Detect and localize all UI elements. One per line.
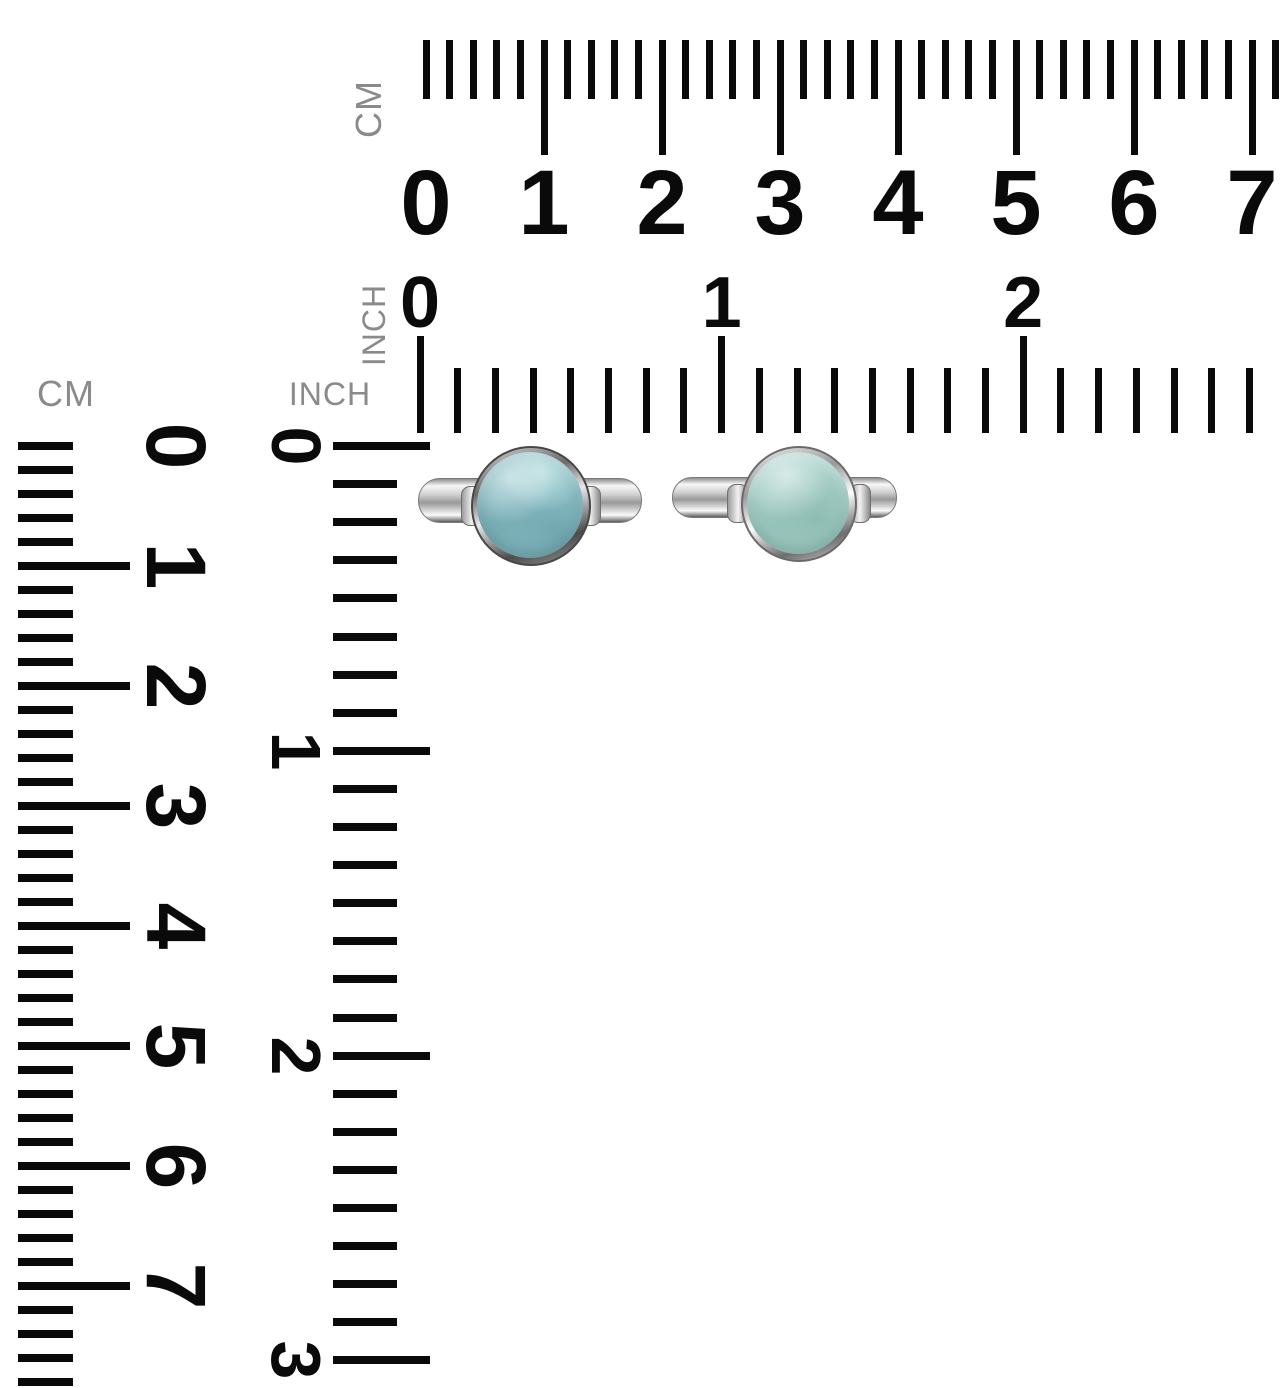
left-cm-tick [18, 1234, 73, 1242]
top-cm-number: 0 [400, 157, 451, 249]
left-cm-major-tick [18, 1042, 130, 1050]
top-cm-tick [682, 40, 689, 99]
left-cm-number: 0 [134, 423, 218, 470]
left-cm-tick [18, 1018, 73, 1026]
left-cm-tick [18, 634, 73, 642]
left-cm-tick [18, 706, 73, 714]
left-cm-tick [18, 1066, 73, 1074]
left-cm-tick [18, 1186, 73, 1194]
left-cm-major-tick [18, 1162, 130, 1170]
inch-unit-label-left: INCH [289, 378, 371, 410]
top-cm-major-tick [1013, 40, 1020, 155]
left-inch-major-tick [333, 747, 430, 755]
left-cm-number: 4 [134, 903, 218, 950]
top-inch-tick [869, 368, 876, 433]
top-inch-tick [756, 368, 763, 433]
left-inch-tick [333, 1014, 397, 1022]
product-measurement-photo: 01234567 012 01234567 0123 CM INCH CM IN… [0, 0, 1284, 1388]
cm-unit-label-top: CM [351, 80, 387, 138]
top-cm-tick [611, 40, 618, 99]
left-cm-tick [18, 1354, 73, 1362]
top-cm-tick [753, 40, 760, 99]
left-inch-tick [333, 633, 397, 641]
top-cm-tick [989, 40, 996, 99]
left-cm-tick [18, 466, 73, 474]
top-cm-tick [1060, 40, 1067, 99]
top-cm-tick [1201, 40, 1208, 99]
left-cm-tick [18, 778, 73, 786]
left-cm-tick [18, 610, 73, 618]
top-cm-tick [871, 40, 878, 99]
top-cm-number: 2 [636, 157, 687, 249]
top-inch-number: 0 [400, 267, 440, 339]
top-cm-tick [564, 40, 571, 99]
top-cm-tick [1083, 40, 1090, 99]
ring-right-aquamarine-stone [747, 452, 849, 554]
top-cm-tick [635, 40, 642, 99]
top-inch-tick [1057, 368, 1064, 433]
left-inch-major-tick [333, 1356, 430, 1364]
left-cm-tick [18, 490, 73, 498]
top-cm-number: 7 [1226, 157, 1277, 249]
top-cm-major-tick [1131, 40, 1138, 155]
left-cm-major-tick [18, 922, 130, 930]
top-inch-major-tick [718, 336, 725, 433]
top-inch-tick [567, 368, 574, 433]
left-cm-tick [18, 1210, 73, 1218]
left-inch-tick [333, 480, 397, 488]
top-cm-major-tick [895, 40, 902, 155]
left-inch-tick [333, 671, 397, 679]
left-inch-tick [333, 1318, 397, 1326]
top-cm-tick [800, 40, 807, 99]
top-inch-number: 1 [702, 267, 742, 339]
top-inch-major-tick [417, 336, 424, 433]
top-cm-tick [1107, 40, 1114, 99]
left-cm-tick [18, 1114, 73, 1122]
top-cm-tick [1036, 40, 1043, 99]
top-cm-number: 3 [754, 157, 805, 249]
left-cm-tick [18, 1378, 73, 1386]
left-cm-number: 2 [134, 663, 218, 710]
left-cm-tick [18, 970, 73, 978]
top-cm-tick [470, 40, 477, 99]
top-cm-tick [588, 40, 595, 99]
left-inch-tick [333, 1128, 397, 1136]
left-cm-tick [18, 946, 73, 954]
left-inch-tick [333, 823, 397, 831]
top-cm-tick [847, 40, 854, 99]
left-inch-tick [333, 1204, 397, 1212]
top-cm-tick [1225, 40, 1232, 99]
top-cm-tick [824, 40, 831, 99]
left-inch-tick [333, 1280, 397, 1288]
left-cm-tick [18, 586, 73, 594]
top-cm-number: 1 [518, 157, 569, 249]
left-inch-tick [333, 1166, 397, 1174]
top-cm-tick [1272, 40, 1279, 99]
left-inch-number: 1 [261, 731, 331, 770]
top-cm-tick [517, 40, 524, 99]
left-inch-tick [333, 785, 397, 793]
top-inch-tick [454, 368, 461, 433]
top-cm-major-tick [541, 40, 548, 155]
top-cm-major-tick [659, 40, 666, 155]
left-inch-major-tick [333, 1052, 430, 1060]
left-cm-tick [18, 1258, 73, 1266]
top-cm-tick [706, 40, 713, 99]
top-inch-tick [982, 368, 989, 433]
top-cm-tick [965, 40, 972, 99]
left-cm-major-tick [18, 682, 130, 690]
top-cm-major-tick [777, 40, 784, 155]
left-cm-tick [18, 850, 73, 858]
left-cm-tick [18, 538, 73, 546]
top-inch-tick [530, 368, 537, 433]
left-inch-tick [333, 937, 397, 945]
left-cm-major-tick [18, 562, 130, 570]
top-inch-tick [492, 368, 499, 433]
left-inch-tick [333, 1090, 397, 1098]
top-inch-tick [1133, 368, 1140, 433]
top-cm-number: 4 [872, 157, 923, 249]
left-inch-tick [333, 861, 397, 869]
left-inch-number: 0 [261, 427, 331, 466]
top-cm-tick [423, 40, 430, 99]
cm-unit-label-left: CM [37, 376, 95, 412]
left-cm-number: 3 [134, 783, 218, 830]
left-cm-tick [18, 1330, 73, 1338]
left-cm-number: 7 [134, 1263, 218, 1310]
top-cm-tick [493, 40, 500, 99]
left-cm-major-tick [18, 1282, 130, 1290]
left-cm-tick [18, 514, 73, 522]
left-inch-tick [333, 594, 397, 602]
left-cm-tick [18, 1306, 73, 1314]
left-inch-tick [333, 709, 397, 717]
left-cm-tick [18, 658, 73, 666]
left-cm-number: 6 [134, 1143, 218, 1190]
left-cm-number: 1 [134, 543, 218, 590]
top-cm-number: 6 [1108, 157, 1159, 249]
top-inch-tick [1208, 368, 1215, 433]
top-cm-tick [729, 40, 736, 99]
left-inch-tick [333, 518, 397, 526]
ring-right [670, 444, 897, 560]
top-inch-major-tick [1020, 336, 1027, 433]
left-cm-tick [18, 442, 73, 450]
left-cm-tick [18, 874, 73, 882]
top-inch-tick [1095, 368, 1102, 433]
top-inch-tick [907, 368, 914, 433]
left-cm-tick [18, 730, 73, 738]
left-inch-tick [333, 556, 397, 564]
left-inch-tick [333, 975, 397, 983]
top-inch-number: 2 [1003, 267, 1043, 339]
left-inch-number: 3 [261, 1341, 331, 1380]
top-cm-tick [942, 40, 949, 99]
top-inch-tick [605, 368, 612, 433]
top-cm-tick [918, 40, 925, 99]
top-cm-number: 5 [990, 157, 1041, 249]
left-cm-major-tick [18, 802, 130, 810]
top-cm-tick [1154, 40, 1161, 99]
left-cm-number: 5 [134, 1023, 218, 1070]
left-inch-tick [333, 899, 397, 907]
top-inch-tick [794, 368, 801, 433]
left-inch-tick [333, 1242, 397, 1250]
top-inch-tick [643, 368, 650, 433]
top-inch-tick [1171, 368, 1178, 433]
left-cm-tick [18, 898, 73, 906]
left-cm-tick [18, 754, 73, 762]
top-cm-major-tick [1249, 40, 1256, 155]
left-cm-tick [18, 826, 73, 834]
top-cm-tick [1178, 40, 1185, 99]
left-inch-number: 2 [261, 1036, 331, 1075]
ring-left-aquamarine-stone [477, 452, 583, 558]
inch-unit-label-top: INCH [358, 284, 390, 366]
left-cm-tick [18, 1138, 73, 1146]
top-inch-tick [1246, 368, 1253, 433]
top-inch-tick [944, 368, 951, 433]
top-inch-tick [680, 368, 687, 433]
left-cm-tick [18, 994, 73, 1002]
top-cm-tick [446, 40, 453, 99]
top-inch-tick [831, 368, 838, 433]
ring-left [416, 444, 642, 564]
left-cm-tick [18, 1090, 73, 1098]
